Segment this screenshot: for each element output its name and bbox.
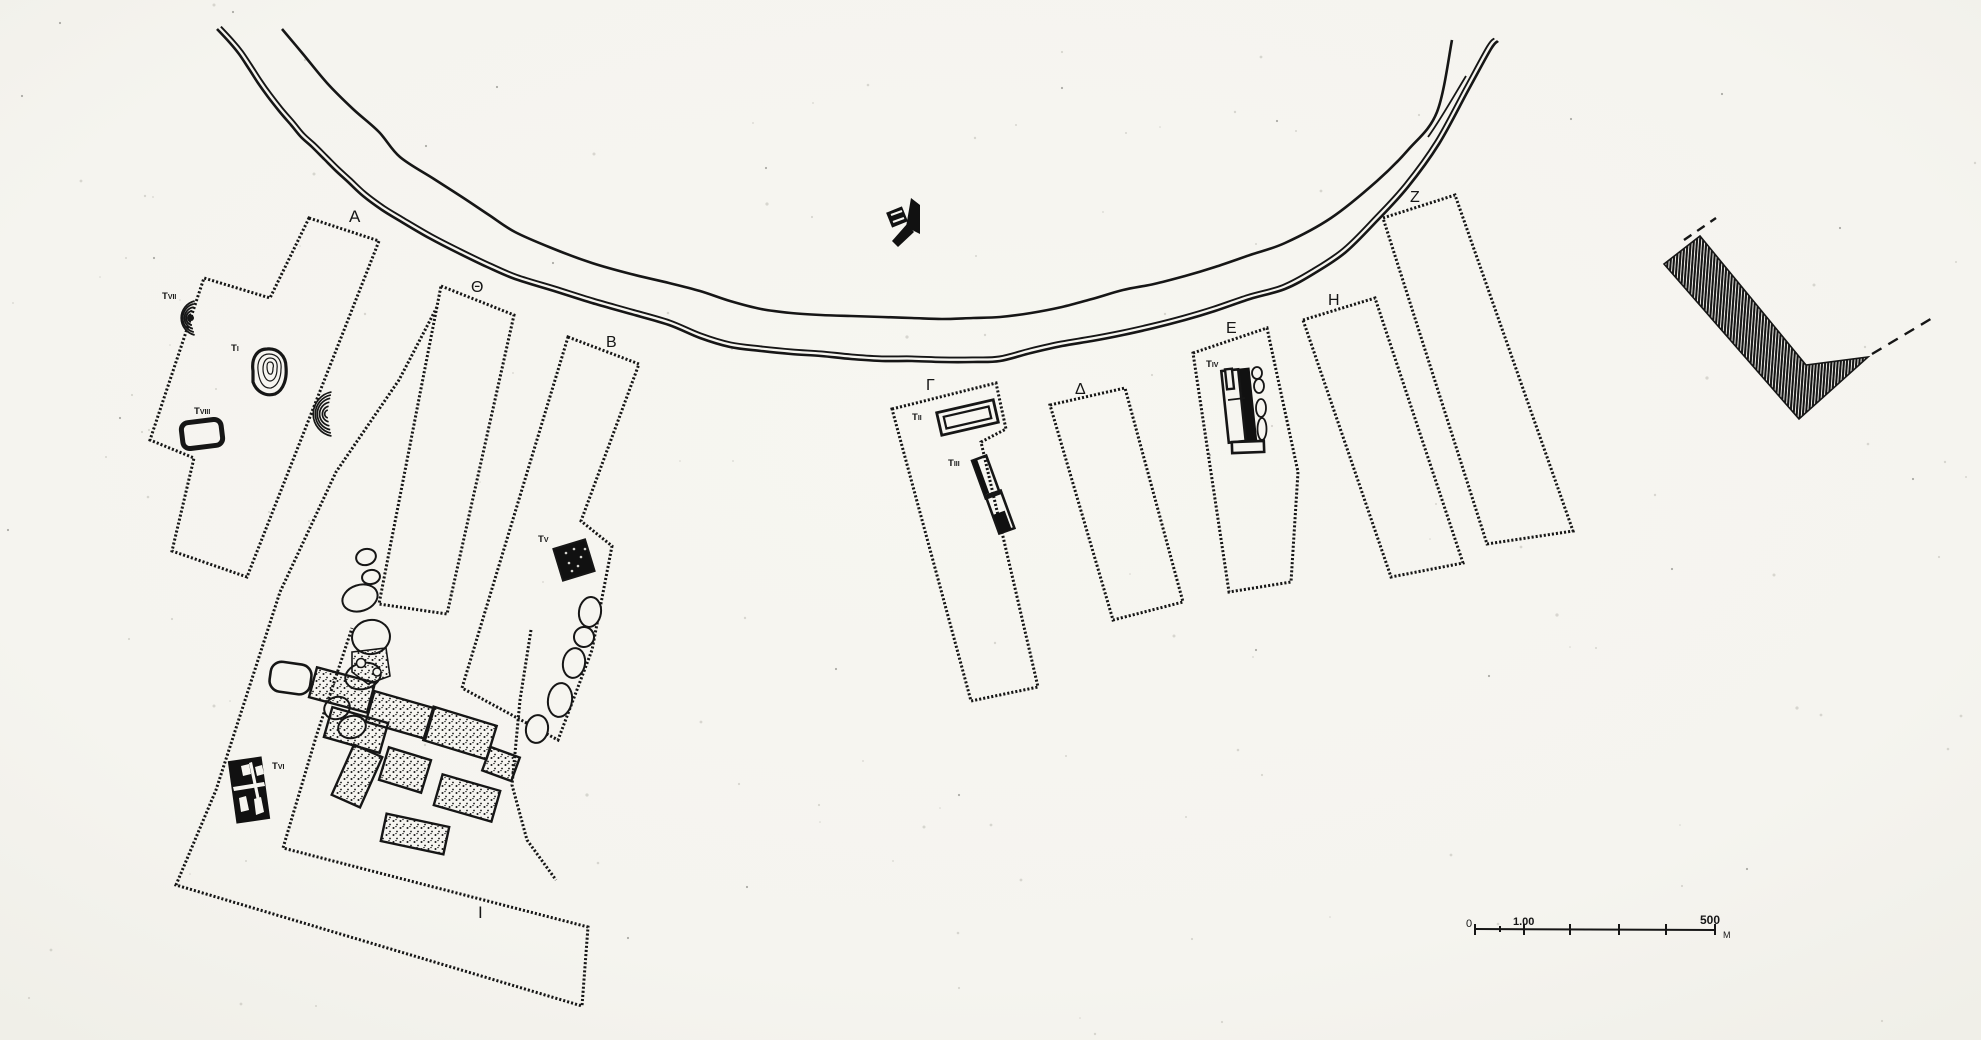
svg-text:Δ: Δ [1075, 381, 1086, 398]
svg-text:0: 0 [1466, 918, 1472, 930]
svg-text:B: B [606, 334, 617, 351]
svg-text:1.00: 1.00 [1513, 916, 1534, 928]
svg-text:A: A [349, 207, 361, 226]
svg-text:H: H [1328, 292, 1340, 309]
svg-text:Z: Z [1410, 189, 1420, 206]
svg-text:500: 500 [1700, 913, 1720, 927]
svg-text:E: E [1226, 320, 1237, 337]
svg-text:Γ: Γ [926, 377, 935, 394]
svg-text:Θ: Θ [471, 279, 483, 296]
svg-text:M: M [1723, 930, 1731, 940]
svg-text:I: I [478, 903, 483, 922]
